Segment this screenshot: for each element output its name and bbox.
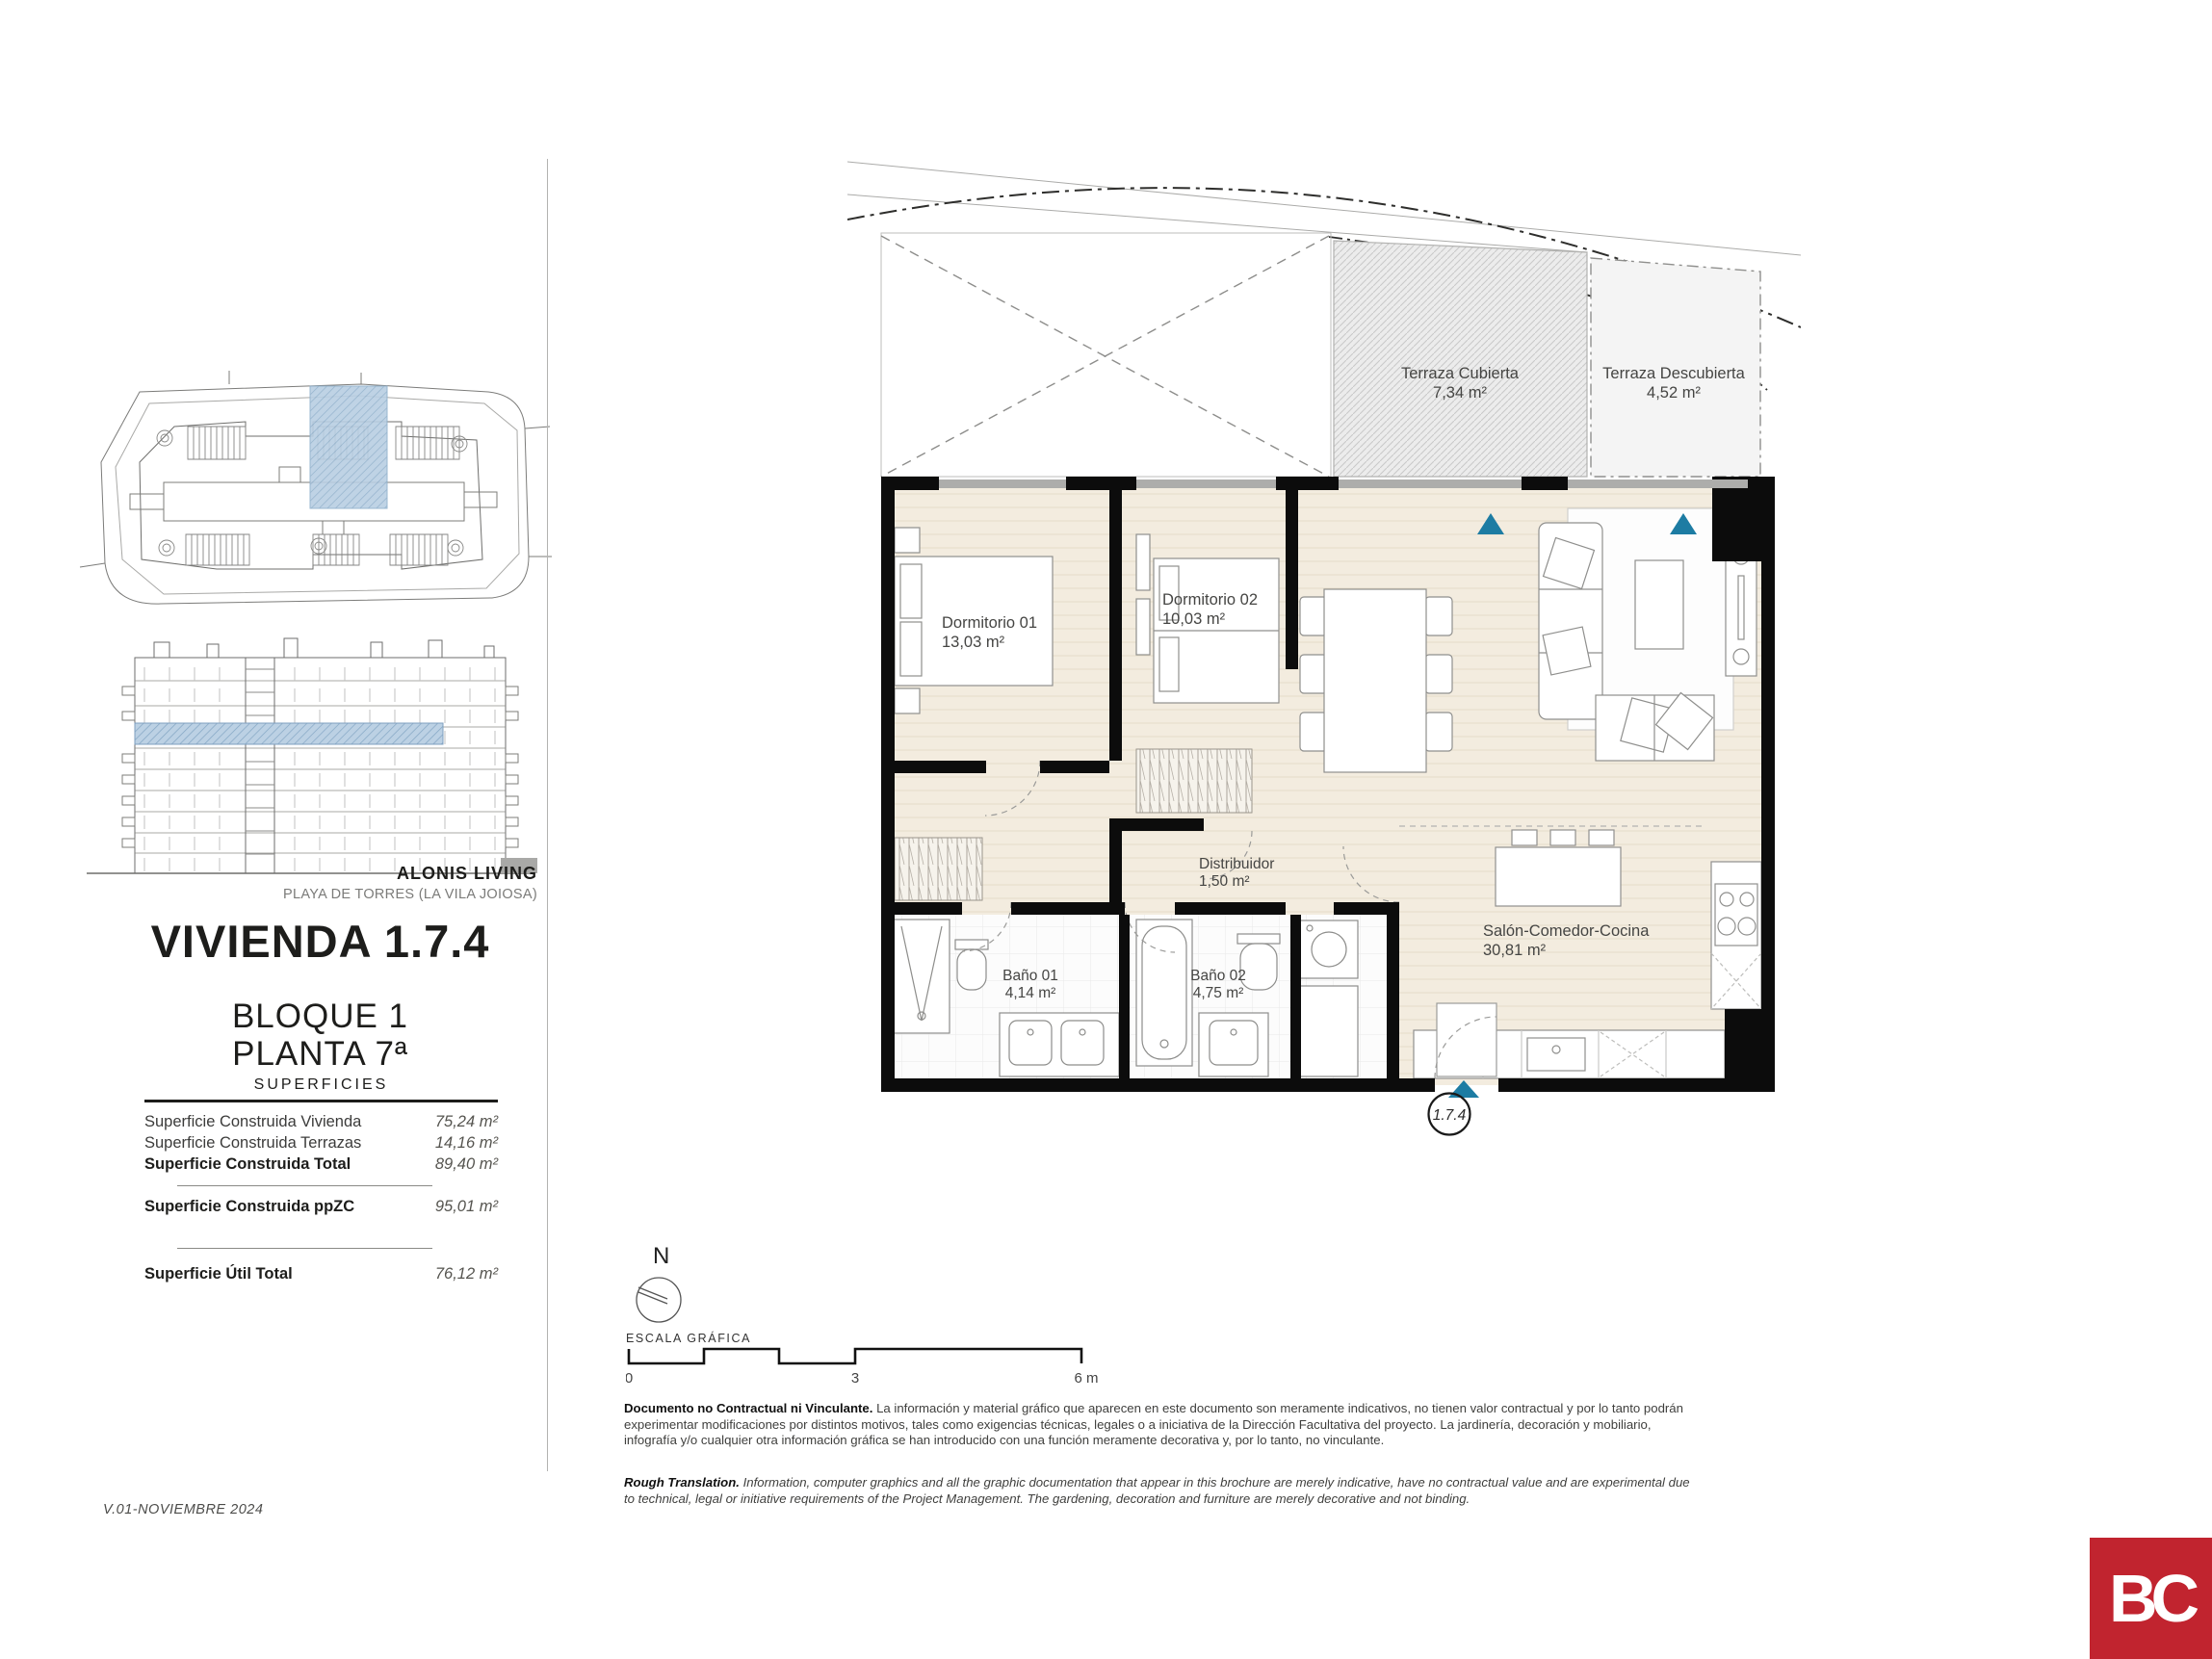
brochure-page: { "brand": { "name": "ALONIS LIVING", "l… <box>0 0 2212 1659</box>
table-divider <box>177 1185 432 1186</box>
room-area: 4,14 m² <box>1005 985 1056 1001</box>
sofa <box>1539 523 1602 719</box>
wardrobe-bedroom2 <box>1136 749 1252 813</box>
disclaimer-en-lead: Rough Translation. <box>624 1475 740 1490</box>
terraza-cubierta-area <box>1334 241 1587 477</box>
dining-table-set <box>1300 589 1452 772</box>
entry-closet <box>1437 1003 1496 1076</box>
room-area: 1,50 m² <box>1199 873 1250 890</box>
vertical-divider <box>547 159 548 1471</box>
room-label: Baño 01 <box>1002 968 1058 984</box>
scale-tick: 0 <box>626 1370 633 1387</box>
unit-badge: 1.7.4 <box>1429 1094 1470 1135</box>
scale-label: ESCALA GRÁFICA <box>626 1332 751 1345</box>
brand-location: PLAYA DE TORRES (LA VILA JOIOSA) <box>193 887 537 902</box>
unit-block: BLOQUE 1 <box>111 998 530 1035</box>
coffee-table <box>1635 560 1683 649</box>
window-sills <box>939 480 1748 488</box>
washing-machine <box>1300 920 1358 978</box>
lounge-chair <box>1596 693 1714 761</box>
table-row: Superficie Construida Terrazas 14,16 m² <box>144 1132 498 1154</box>
disclaimer-es-lead: Documento no Contractual ni Vinculante. <box>624 1401 872 1415</box>
wardrobe-hall <box>895 838 982 900</box>
bc-logo-text: BC <box>2109 1560 2193 1637</box>
room-label: Terraza Descubierta <box>1602 365 1745 382</box>
room-label: Salón-Comedor-Cocina <box>1483 922 1650 940</box>
brand-name: ALONIS LIVING <box>193 864 537 884</box>
room-label: Distribuidor <box>1199 856 1274 872</box>
unit-badge-label: 1.7.4 <box>1433 1107 1467 1124</box>
page-title: VIVIENDA 1.7.4 <box>111 915 530 968</box>
surfaces-header: SUPERFICIES <box>144 1076 498 1094</box>
unit-floor: PLANTA 7ª <box>111 1035 530 1073</box>
room-label: Dormitorio 02 <box>1162 591 1258 609</box>
surface-label: Superficie Construida Total <box>144 1155 351 1174</box>
table-divider <box>177 1248 432 1249</box>
graphic-scale-bar: 0 3 6 m <box>626 1346 1136 1389</box>
surface-value: 89,40 m² <box>435 1155 498 1174</box>
shower <box>894 920 950 1033</box>
surface-value: 75,24 m² <box>435 1113 498 1131</box>
surface-value: 95,01 m² <box>435 1198 498 1216</box>
elevation-roof-parapets <box>154 638 494 658</box>
room-label: Terraza Cubierta <box>1401 365 1520 382</box>
compass-needle-icon <box>638 1287 667 1304</box>
scale-bar-path <box>629 1349 1081 1363</box>
version-note: V.01-NOVIEMBRE 2024 <box>103 1502 263 1517</box>
site-plan-diagram <box>72 371 554 621</box>
brand-block: ALONIS LIVING PLAYA DE TORRES (LA VILA J… <box>193 864 537 902</box>
surface-label: Superficie Construida Terrazas <box>144 1134 361 1153</box>
surface-label: Superficie Construida ppZC <box>144 1198 354 1216</box>
room-area: 30,81 m² <box>1483 942 1547 959</box>
surfaces-rule <box>144 1100 498 1102</box>
room-area: 10,03 m² <box>1162 610 1226 628</box>
scale-tick: 6 m <box>1074 1370 1098 1387</box>
disclaimer-en-body: Information, computer graphics and all t… <box>624 1475 1690 1506</box>
table-row: Superficie Útil Total 76,12 m² <box>144 1263 498 1284</box>
room-area: 7,34 m² <box>1433 384 1487 402</box>
surface-value: 76,12 m² <box>435 1265 498 1283</box>
floor-plan: Terraza Cubierta 7,34 m² Terraza Descubi… <box>847 144 1801 1242</box>
disclaimer-es: Documento no Contractual ni Vinculante. … <box>624 1401 1691 1449</box>
room-area: 13,03 m² <box>942 634 1005 651</box>
surface-label: Superficie Útil Total <box>144 1265 293 1283</box>
table-row: Superficie Construida ppZC 95,01 m² <box>144 1196 498 1217</box>
highlighted-unit-location <box>310 386 387 508</box>
room-area: 4,75 m² <box>1193 985 1244 1001</box>
highlighted-floor-band <box>135 723 443 744</box>
north-compass: N <box>624 1244 711 1336</box>
table-row: Superficie Construida Total 89,40 m² <box>144 1154 498 1175</box>
room-label: Baño 02 <box>1190 968 1246 984</box>
disclaimer-en: Rough Translation. Information, computer… <box>624 1475 1691 1507</box>
disclaimer-block: Documento no Contractual ni Vinculante. … <box>624 1401 1691 1507</box>
bc-logo: BC <box>2090 1538 2212 1659</box>
double-sink-vanity <box>1000 1013 1119 1076</box>
surface-value: 14,16 m² <box>435 1134 498 1153</box>
room-label: Dormitorio 01 <box>942 614 1037 632</box>
kitchen-counter-right <box>1711 862 1761 1009</box>
unit-subtitle: BLOQUE 1 PLANTA 7ª <box>111 998 530 1073</box>
room-area: 4,52 m² <box>1647 384 1701 402</box>
laundry-cabinet <box>1300 986 1358 1076</box>
neighbour-terrace-area <box>881 233 1331 477</box>
scale-tick: 3 <box>851 1370 859 1387</box>
kitchen-island <box>1496 830 1621 906</box>
surfaces-table: Superficie Construida Vivienda 75,24 m² … <box>144 1111 498 1284</box>
north-label: N <box>653 1244 669 1269</box>
table-row: Superficie Construida Vivienda 75,24 m² <box>144 1111 498 1132</box>
sink-bath2 <box>1199 1013 1268 1076</box>
toilet-bath1 <box>955 940 988 990</box>
surface-label: Superficie Construida Vivienda <box>144 1113 361 1131</box>
